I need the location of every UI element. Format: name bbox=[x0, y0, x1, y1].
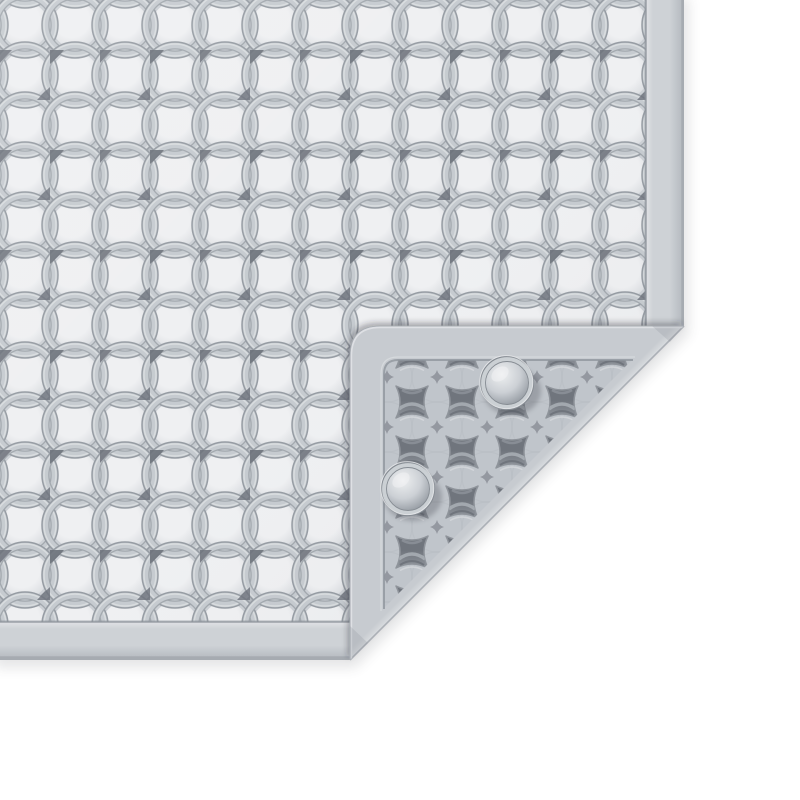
right-rim-seam-line bbox=[645, 0, 647, 380]
product-render-stage bbox=[0, 0, 800, 800]
right-rim-outer-edge bbox=[681, 0, 684, 380]
right-edge-rim bbox=[645, 0, 684, 380]
bottom-rim-outer-edge bbox=[0, 656, 400, 660]
bottom-edge-rim bbox=[0, 621, 400, 660]
mat-product-render bbox=[0, 0, 800, 800]
bottom-rim-seam-line bbox=[0, 621, 400, 623]
